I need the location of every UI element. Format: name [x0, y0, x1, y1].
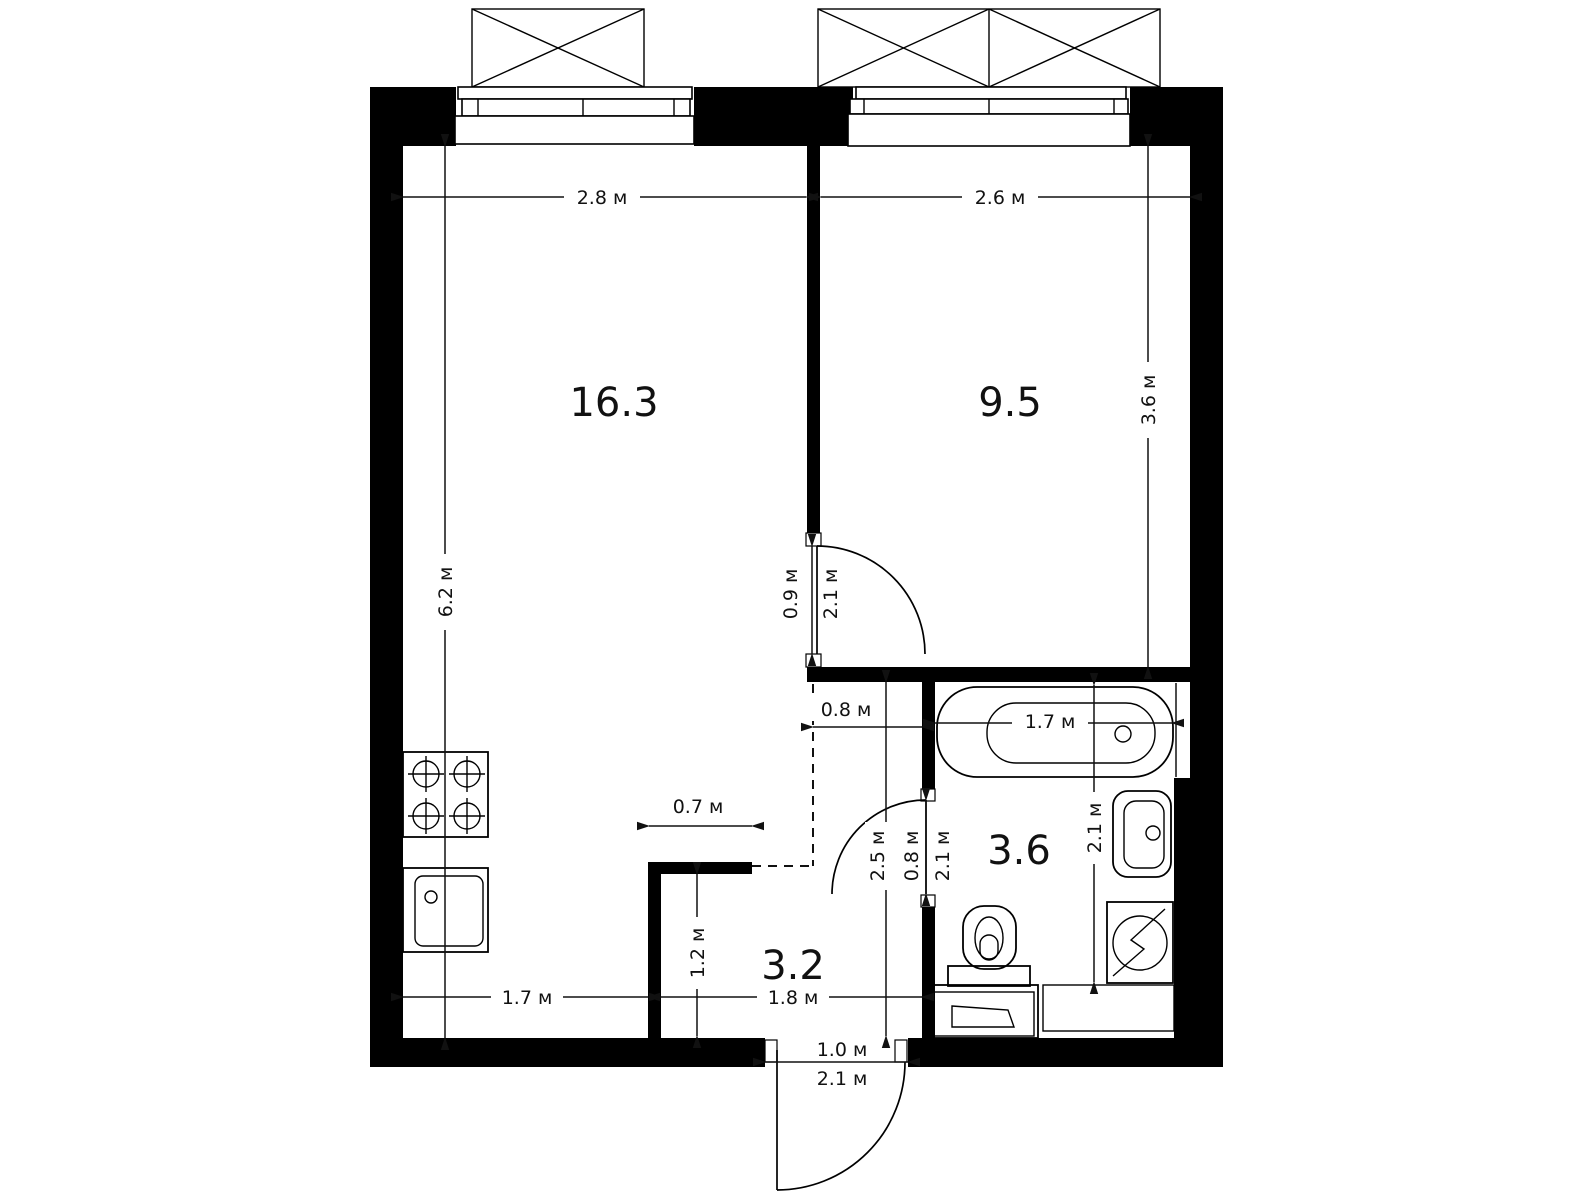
dim-entry-door-width: 1.0 м	[806, 1037, 878, 1061]
washing-machine-icon	[1107, 902, 1173, 983]
dim-label: 2.1 м	[820, 569, 842, 620]
dim-label: 2.5 м	[867, 831, 889, 882]
balcony-box-icon	[472, 9, 644, 87]
dim-label: 1.8 м	[768, 987, 819, 1009]
floor-plan: 2.8 м 2.6 м 6.2 м 3.6 м 0.9 м 2.1 м 0.8 …	[0, 0, 1594, 1200]
balcony-box-icon	[818, 9, 1160, 87]
dim-label: 3.6 м	[1138, 375, 1160, 426]
dim-label: 2.1 м	[932, 831, 954, 882]
dim-label: 1.2 м	[687, 928, 709, 979]
room-label-bathroom: 3.6	[987, 828, 1051, 874]
dim-bathtub-length: 1.7 м	[1012, 708, 1088, 734]
dim-room-door-width: 0.9 м	[778, 560, 802, 628]
hallway-boundary-dashed	[752, 684, 813, 866]
dim-label: 2.8 м	[577, 187, 628, 209]
dim-bath-door-height: 2.1 м	[931, 822, 954, 890]
dim-bedroom-width: 2.6 м	[962, 184, 1038, 210]
washbasin-icon	[1113, 791, 1171, 877]
dim-hall-top-width: 0.8 м	[810, 697, 882, 721]
dim-kitchen-width: 1.7 м	[491, 985, 563, 1009]
dim-label: 1.0 м	[817, 1039, 868, 1061]
window-living	[455, 9, 694, 144]
dim-kitchen-stub-width: 0.7 м	[662, 794, 734, 818]
dim-room-door-height: 2.1 м	[818, 560, 842, 628]
dim-entry-door-height: 2.1 м	[817, 1068, 868, 1090]
dim-bath-door-width: 0.8 м	[900, 822, 923, 890]
dim-label: 2.1 м	[1084, 803, 1106, 854]
dim-living-width: 2.8 м	[564, 184, 640, 210]
room-label-living: 16.3	[569, 380, 658, 426]
dim-label: 0.8 м	[901, 831, 923, 882]
dim-label: 1.7 м	[1025, 711, 1076, 733]
dim-label: 2.1 м	[817, 1068, 868, 1090]
access-hatch-icon	[930, 985, 1038, 1038]
dim-label: 2.6 м	[975, 187, 1026, 209]
room-label-hallway: 3.2	[761, 943, 825, 989]
dim-label: 0.8 м	[821, 699, 872, 721]
dim-label: 0.7 м	[673, 796, 724, 818]
dim-hall-depth: 2.5 м	[865, 822, 889, 890]
dim-bedroom-height: 3.6 м	[1135, 362, 1161, 438]
dim-living-height: 6.2 м	[432, 554, 458, 630]
dim-label: 1.7 м	[502, 987, 553, 1009]
window-bedroom	[818, 9, 1160, 146]
dim-bathroom-depth: 2.1 м	[1082, 792, 1106, 864]
room-label-bedroom: 9.5	[978, 380, 1042, 426]
toilet-icon	[948, 906, 1030, 986]
dim-label: 6.2 м	[435, 567, 457, 618]
bathroom-ledge	[1043, 985, 1174, 1031]
dim-stub-height: 1.2 м	[685, 917, 709, 989]
dim-label: 0.9 м	[780, 569, 802, 620]
